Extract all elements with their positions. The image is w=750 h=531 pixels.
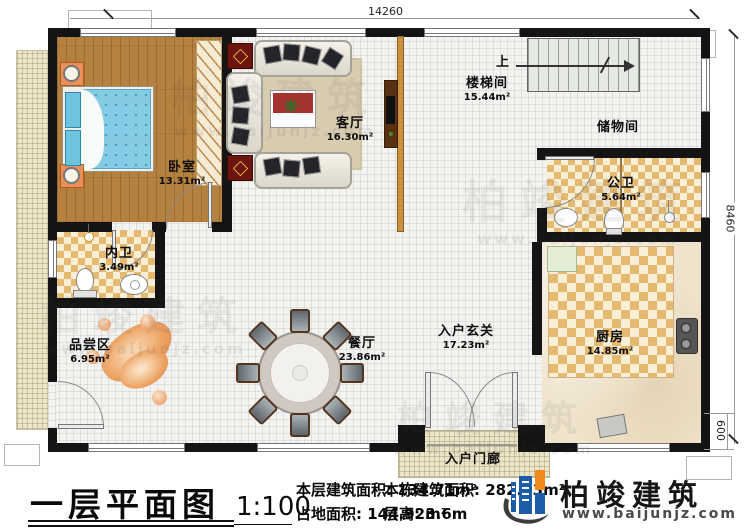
sink-icon <box>554 208 578 227</box>
wall-segment <box>48 222 112 232</box>
wall-segment <box>532 242 542 355</box>
side-yard-strip <box>16 50 50 430</box>
door-opening <box>48 382 57 428</box>
dining-chair <box>236 363 260 383</box>
stove-burner <box>681 323 691 333</box>
shower-icon <box>664 212 675 223</box>
entry-door-leaf-left <box>425 372 431 428</box>
wall-segment <box>366 28 424 37</box>
stairs-up-label: 上 <box>496 55 510 71</box>
fridge <box>547 246 577 272</box>
decor-dot <box>389 132 393 136</box>
toilet-tank <box>606 228 622 235</box>
room-label-tasting: 品尝区 6.95m² <box>69 338 111 366</box>
wall-segment <box>537 232 710 242</box>
title-underline <box>28 525 234 527</box>
wall-segment <box>520 28 710 37</box>
side-table <box>227 155 253 181</box>
dining-chair <box>340 363 364 383</box>
wall-segment <box>370 443 398 452</box>
room-label-private-bath: 内卫 3.49m² <box>99 246 138 274</box>
room-label-porch: 入户门廊 <box>445 452 501 468</box>
window <box>257 443 370 452</box>
stat-floor-height: 层高: 3.6m <box>384 503 467 524</box>
porch-pier <box>398 425 425 452</box>
tv-partition-wall <box>397 36 404 232</box>
wall-segment <box>176 28 256 37</box>
sofa-cushion <box>282 159 300 177</box>
wall-segment <box>152 222 166 232</box>
room-label-bedroom: 卧室 13.31m² <box>159 160 205 188</box>
window <box>88 443 185 452</box>
wall-segment <box>185 443 257 452</box>
plant-icon: ❋ <box>284 98 302 116</box>
side-table <box>227 43 253 69</box>
lamp-icon <box>84 232 94 242</box>
dining-chair <box>290 413 310 437</box>
dining-chair <box>290 309 310 333</box>
dining-table-center <box>292 365 308 381</box>
dim-porch-value: 600 <box>714 418 727 443</box>
window <box>256 28 366 37</box>
room-label-dining: 餐厅 23.86m² <box>339 336 385 364</box>
stove-burner <box>681 339 691 349</box>
dim-top-value: 14260 <box>366 5 405 18</box>
dim-line-right <box>734 36 735 444</box>
sink-drain <box>130 280 140 290</box>
window <box>80 28 176 37</box>
lamp-icon <box>63 167 80 184</box>
entry-door-leaf-right <box>512 372 518 428</box>
wall-segment <box>48 443 88 452</box>
window <box>577 443 670 452</box>
toilet-tank <box>73 290 97 298</box>
stair-direction-line <box>516 65 626 67</box>
shower-pipe <box>668 200 669 212</box>
wall-segment <box>155 232 165 308</box>
wall-segment <box>48 298 165 308</box>
room-label-living: 客厅 16.30m² <box>327 116 373 144</box>
wall-segment <box>670 443 710 452</box>
room-label-stairwell: 楼梯间 15.44m² <box>464 76 510 104</box>
room-label-storage: 储物间 <box>597 120 639 136</box>
lamp-icon <box>63 65 80 82</box>
dim-extension-box <box>68 10 152 30</box>
toilet-icon <box>76 268 94 292</box>
dim-line-top <box>70 18 700 19</box>
dim-extension-box <box>4 444 40 466</box>
sofa-cushion <box>282 43 300 61</box>
tasting-stone-small <box>140 314 155 329</box>
window <box>424 28 520 37</box>
dim-right-value: 8460 <box>724 203 737 235</box>
room-label-foyer: 入户玄关 17.23m² <box>438 324 494 352</box>
tasting-stone-small <box>98 318 111 331</box>
bed-pillow <box>65 130 81 166</box>
porch-pier <box>518 425 545 452</box>
window <box>701 172 710 218</box>
sofa-cushion <box>263 45 283 65</box>
side-exit-door-leaf <box>58 424 104 429</box>
lamp-cord <box>88 224 89 233</box>
sofa-cushion <box>231 85 251 105</box>
wall-segment <box>545 443 577 452</box>
sofa-cushion <box>263 157 283 177</box>
dim-line-porch <box>727 414 728 450</box>
window <box>48 240 57 278</box>
stair-arrow-head <box>624 60 635 72</box>
title-underline <box>28 520 234 522</box>
sofa-cushion <box>302 156 321 175</box>
room-label-public-bath: 公卫 5.64m² <box>601 176 640 204</box>
room-label-kitchen: 厨房 14.85m² <box>587 330 633 358</box>
title-underline-extension <box>234 524 292 525</box>
brand-website: www.baijunjz.com <box>562 506 737 522</box>
dim-extension <box>704 449 734 450</box>
sofa-cushion <box>231 127 251 147</box>
floor-plan-canvas: 上 <box>0 0 750 531</box>
window <box>701 58 710 112</box>
entry-threshold <box>427 444 517 446</box>
sofa-cushion <box>231 106 249 124</box>
bedroom-door-leaf <box>208 182 212 228</box>
dim-extension <box>704 413 734 414</box>
tv-icon <box>386 96 395 124</box>
bed-pillow <box>65 92 81 128</box>
public-bath-door-leaf <box>545 156 594 160</box>
wall-segment <box>212 222 232 232</box>
brand-logo-icon <box>497 468 557 526</box>
tasting-stone-small <box>152 390 167 405</box>
plan-title: 一层平面图 <box>30 478 220 526</box>
